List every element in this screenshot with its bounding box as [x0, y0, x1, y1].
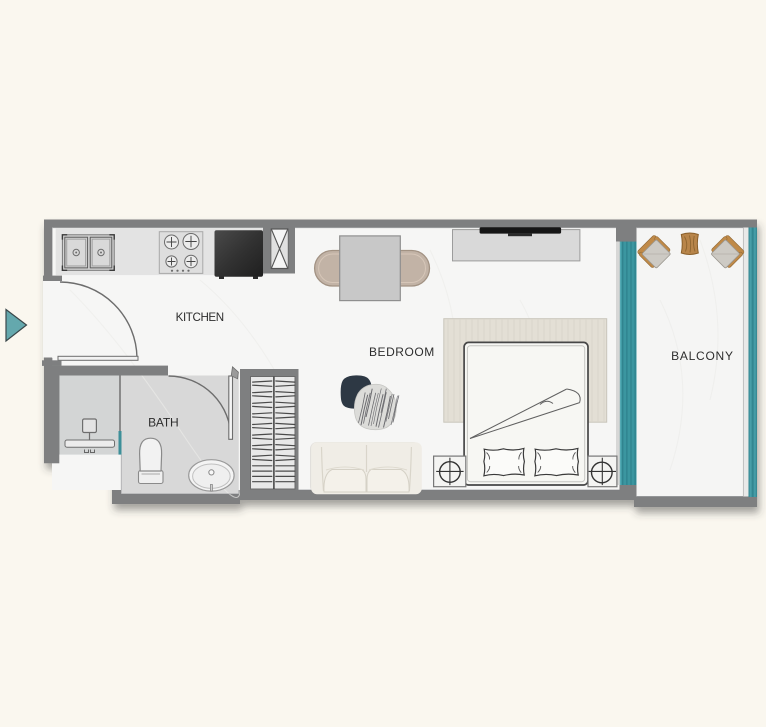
- svg-text:KITCHEN: KITCHEN: [176, 311, 224, 324]
- svg-text:BATH: BATH: [148, 415, 178, 429]
- svg-text:BEDROOM: BEDROOM: [369, 345, 435, 359]
- svg-text:BALCONY: BALCONY: [671, 349, 734, 363]
